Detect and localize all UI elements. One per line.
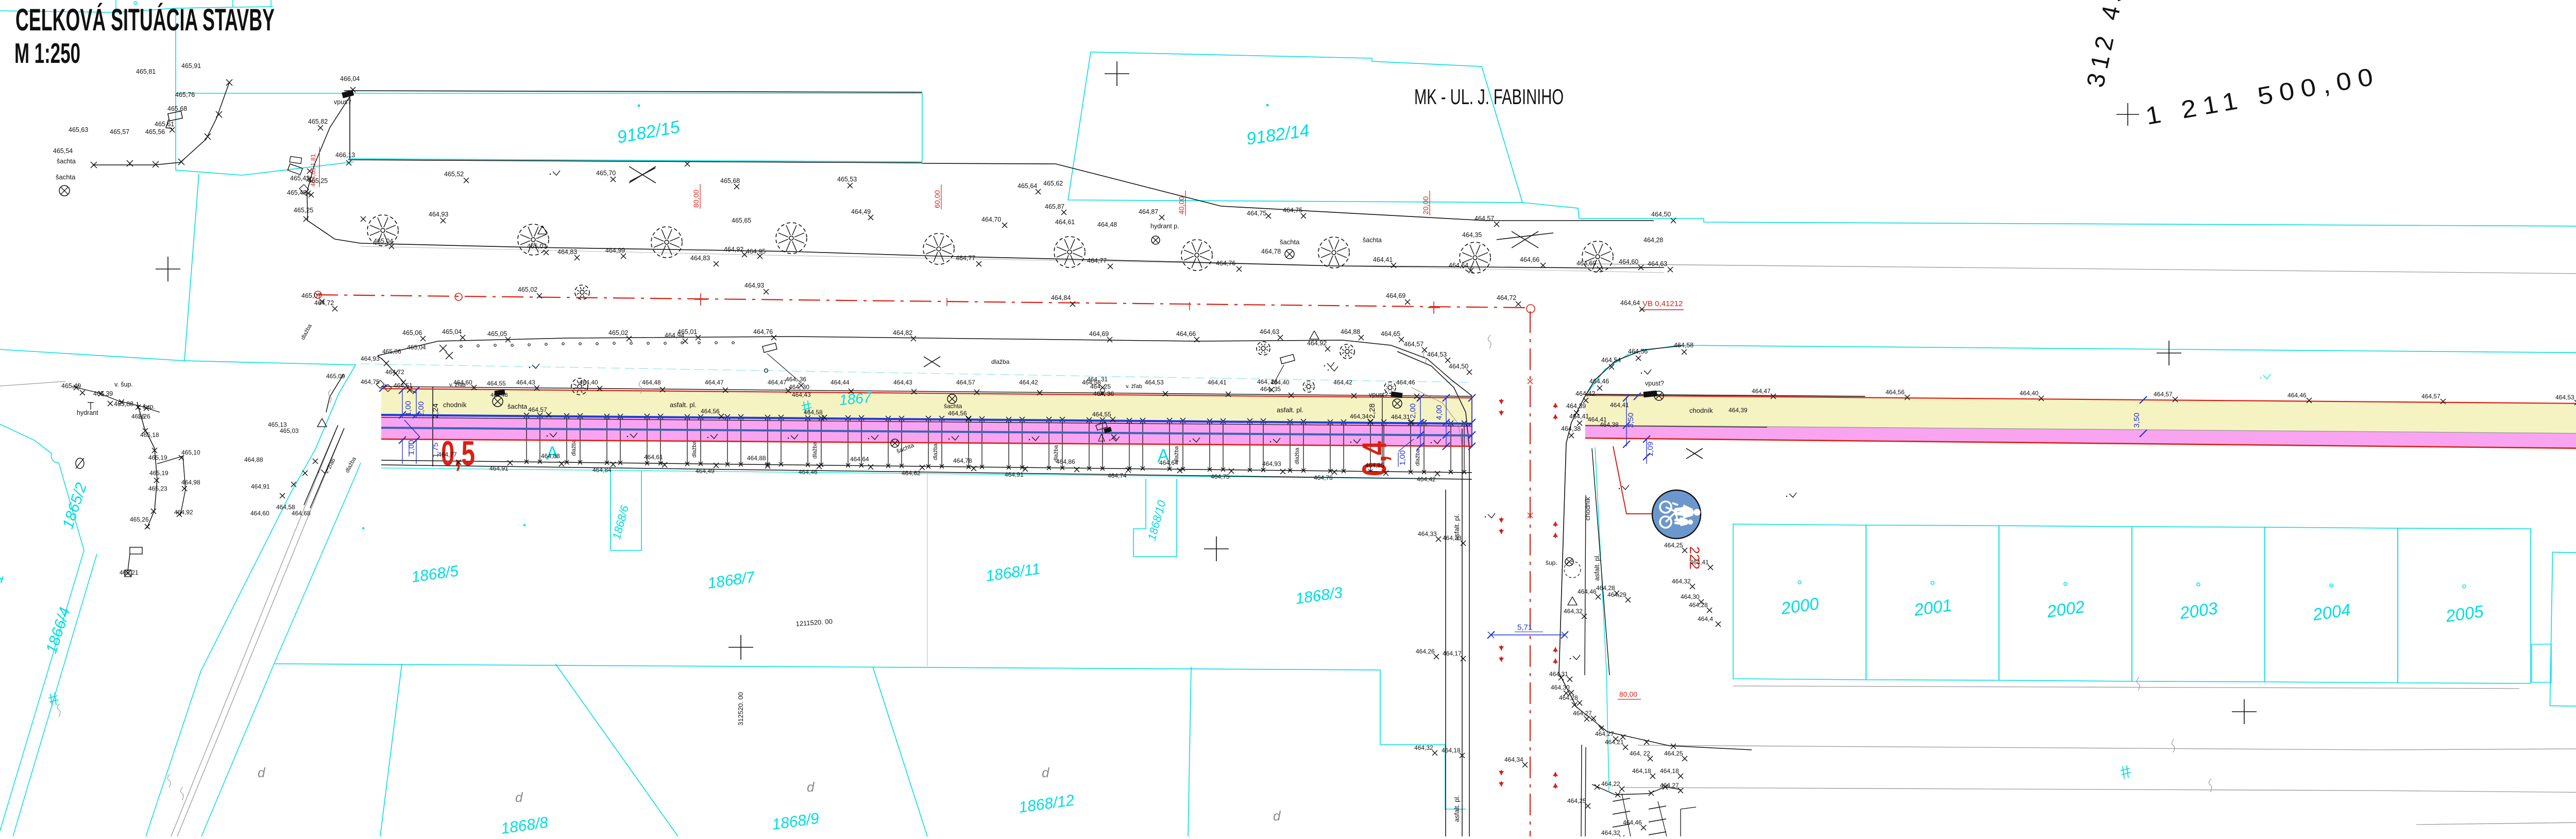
svg-text:464,32: 464,32 xyxy=(1672,578,1691,585)
svg-text:464,58: 464,58 xyxy=(1082,379,1101,386)
svg-text:465,19: 465,19 xyxy=(149,469,168,477)
svg-text:464,64: 464,64 xyxy=(850,456,869,463)
svg-text:dlažba: dlažba xyxy=(691,441,698,458)
svg-text:464,32: 464,32 xyxy=(1414,744,1433,751)
svg-text:465,81: 465,81 xyxy=(136,68,156,75)
svg-text:464,66: 464,66 xyxy=(1176,330,1196,338)
svg-text:464,54: 464,54 xyxy=(1601,357,1621,364)
svg-text:asfalt. pl.: asfalt. pl. xyxy=(1453,795,1461,822)
svg-text:465,06: 465,06 xyxy=(402,329,422,337)
svg-text:464,99: 464,99 xyxy=(605,247,625,254)
svg-text:466,13: 466,13 xyxy=(335,152,355,159)
svg-text:šachta: šachta xyxy=(1280,238,1300,246)
svg-text:465,65: 465,65 xyxy=(732,217,751,224)
svg-text:dlažba: dlažba xyxy=(933,443,939,460)
svg-text:464,69: 464,69 xyxy=(1577,260,1596,267)
svg-text:464,60: 464,60 xyxy=(1619,258,1638,265)
svg-text:464,74: 464,74 xyxy=(1108,472,1127,479)
svg-text:464,93: 464,93 xyxy=(429,211,448,218)
svg-text:464,87: 464,87 xyxy=(1139,208,1158,215)
svg-text:464,27: 464,27 xyxy=(1573,710,1592,717)
svg-text:464,88: 464,88 xyxy=(541,452,560,460)
svg-text:464,27: 464,27 xyxy=(1595,730,1614,737)
svg-text:465,63: 465,63 xyxy=(69,126,88,133)
svg-text:312520. 00: 312520. 00 xyxy=(737,692,744,726)
svg-text:464,55: 464,55 xyxy=(1092,411,1111,418)
svg-text:465,26: 465,26 xyxy=(130,516,149,523)
svg-text:464,57: 464,57 xyxy=(2421,393,2441,400)
svg-text:464,27: 464,27 xyxy=(1660,782,1679,789)
svg-text:464,31: 464,31 xyxy=(1549,670,1568,678)
svg-text:464,62: 464,62 xyxy=(902,469,921,477)
svg-text:dlažba: dlažba xyxy=(812,442,818,459)
svg-text:d: d xyxy=(807,779,815,795)
svg-text:464,46: 464,46 xyxy=(1396,379,1415,386)
svg-text:464,42: 464,42 xyxy=(1019,379,1038,386)
svg-text:464,66: 464,66 xyxy=(1520,256,1539,263)
svg-text:20,00: 20,00 xyxy=(1421,196,1430,214)
svg-text:1,00: 1,00 xyxy=(404,401,413,416)
svg-text:464,53: 464,53 xyxy=(1427,351,1447,358)
svg-text:464,42: 464,42 xyxy=(1417,476,1436,483)
svg-text:464,76: 464,76 xyxy=(753,328,773,335)
svg-text:464,18: 464,18 xyxy=(1632,767,1651,775)
svg-text:464,46: 464,46 xyxy=(2287,392,2307,399)
svg-text:464,49: 464,49 xyxy=(696,467,715,475)
svg-text:465,68: 465,68 xyxy=(720,177,740,184)
svg-text:šachta: šachta xyxy=(56,173,76,181)
svg-text:465,61: 465,61 xyxy=(155,121,174,128)
svg-text:2,00: 2,00 xyxy=(417,401,426,416)
svg-text:464,48: 464,48 xyxy=(1097,221,1117,228)
svg-text:464,35: 464,35 xyxy=(1462,231,1482,239)
svg-text:464,18: 464,18 xyxy=(1442,747,1461,754)
svg-text:464,53: 464,53 xyxy=(2555,394,2574,401)
svg-text:464,92: 464,92 xyxy=(1307,340,1327,347)
svg-text:0,4: 0,4 xyxy=(1355,441,1393,476)
svg-text:465,10: 465,10 xyxy=(181,449,200,456)
svg-text:464,28: 464,28 xyxy=(1689,601,1708,609)
svg-text:465,91: 465,91 xyxy=(181,62,201,70)
svg-text:465,39: 465,39 xyxy=(93,390,113,397)
svg-text:465,05: 465,05 xyxy=(487,330,507,338)
svg-text:465,70: 465,70 xyxy=(596,170,616,177)
svg-text:464,88: 464,88 xyxy=(244,456,263,463)
svg-text:vpust?: vpust? xyxy=(1369,391,1388,398)
svg-text:464,77: 464,77 xyxy=(1087,257,1107,264)
svg-text:464,25: 464,25 xyxy=(1567,797,1586,804)
svg-text:464,85: 464,85 xyxy=(1365,462,1384,469)
svg-text:464,64: 464,64 xyxy=(1159,459,1178,466)
svg-text:v. žľab: v. žľab xyxy=(1126,383,1142,390)
svg-text:chodník: chodník xyxy=(443,401,467,409)
svg-text:465,25: 465,25 xyxy=(294,207,313,214)
svg-text:2,24: 2,24 xyxy=(431,404,440,418)
svg-text:464,47: 464,47 xyxy=(705,379,724,386)
svg-text:VB 0,41212: VB 0,41212 xyxy=(1642,299,1683,308)
svg-text:465,76: 465,76 xyxy=(175,91,195,98)
svg-text:dlažba: dlažba xyxy=(991,358,1010,365)
svg-text:šachta: šachta xyxy=(1363,237,1382,244)
svg-text:chodník: chodník xyxy=(1689,407,1713,414)
svg-text:464,41: 464,41 xyxy=(1690,559,1709,566)
svg-text:5,71: 5,71 xyxy=(1517,623,1532,632)
svg-text:465,49: 465,49 xyxy=(61,382,81,390)
svg-text:464,56: 464,56 xyxy=(948,410,967,417)
svg-text:d: d xyxy=(515,790,523,805)
svg-text:464,56: 464,56 xyxy=(701,408,720,415)
svg-text:464,49: 464,49 xyxy=(851,208,871,215)
svg-text:464,53: 464,53 xyxy=(1145,379,1164,386)
svg-text:464,93: 464,93 xyxy=(744,282,764,289)
svg-text:hydrant p.: hydrant p. xyxy=(1150,223,1179,230)
svg-text:464,57: 464,57 xyxy=(1404,341,1423,348)
svg-text:asfalt. pl.: asfalt. pl. xyxy=(670,401,697,409)
svg-text:464,76: 464,76 xyxy=(1314,474,1333,481)
svg-text:464,41: 464,41 xyxy=(1373,256,1393,263)
svg-text:464,72: 464,72 xyxy=(1497,294,1516,301)
svg-text:464,98: 464,98 xyxy=(181,479,200,486)
svg-text:d: d xyxy=(258,765,266,780)
svg-text:464,61: 464,61 xyxy=(644,454,663,461)
svg-text:464,93: 464,93 xyxy=(361,355,380,362)
svg-text:464,88: 464,88 xyxy=(1341,328,1360,335)
svg-text:464,29: 464,29 xyxy=(1607,591,1626,598)
svg-text:464,46: 464,46 xyxy=(1623,819,1642,826)
svg-text:465,26: 465,26 xyxy=(131,413,150,420)
svg-text:v. šup.: v. šup. xyxy=(114,381,133,388)
svg-text:464,44: 464,44 xyxy=(831,379,850,386)
svg-text:1,09: 1,09 xyxy=(1646,442,1655,457)
svg-text:464,65: 464,65 xyxy=(1381,330,1400,338)
svg-text:464,75: 464,75 xyxy=(1247,210,1266,217)
svg-text:465,06: 465,06 xyxy=(382,348,401,355)
svg-text:464,41: 464,41 xyxy=(1588,416,1607,423)
svg-text:466,04: 466,04 xyxy=(340,75,360,82)
svg-text:464,22: 464,22 xyxy=(1601,780,1620,787)
svg-text:šachta: šachta xyxy=(57,158,76,165)
svg-text:465,02: 465,02 xyxy=(518,286,537,293)
svg-text:dlažba: dlažba xyxy=(1294,447,1300,464)
svg-text:464,60: 464,60 xyxy=(453,379,472,386)
svg-text:464,33: 464,33 xyxy=(1443,534,1462,542)
svg-text:MK - UL. J. FABINIHO: MK - UL. J. FABINIHO xyxy=(1414,85,1564,109)
svg-text:465,53: 465,53 xyxy=(837,176,857,183)
svg-text:465,62: 465,62 xyxy=(1043,180,1063,187)
svg-text:464,58: 464,58 xyxy=(804,409,823,416)
svg-text:464,92: 464,92 xyxy=(724,246,743,253)
svg-text:464,95: 464,95 xyxy=(746,248,766,255)
svg-text:464,42: 464,42 xyxy=(1333,379,1352,386)
svg-text:464,75: 464,75 xyxy=(1211,473,1230,480)
svg-text:464,47: 464,47 xyxy=(768,379,787,386)
svg-text:465,09: 465,09 xyxy=(326,373,345,380)
svg-text:chodník: chodník xyxy=(1584,497,1591,521)
svg-text:465,57: 465,57 xyxy=(110,128,129,136)
svg-text:464,39: 464,39 xyxy=(1728,407,1748,414)
svg-text:464,48: 464,48 xyxy=(490,392,508,398)
svg-text:464,41: 464,41 xyxy=(1208,379,1227,386)
svg-text:464,60: 464,60 xyxy=(250,510,269,517)
svg-text:464,48: 464,48 xyxy=(642,379,661,386)
svg-text:464,40: 464,40 xyxy=(1270,379,1290,386)
svg-text:M 1:250: M 1:250 xyxy=(14,37,80,69)
svg-text:hydrant: hydrant xyxy=(77,409,98,416)
svg-text:464, 22: 464, 22 xyxy=(1630,750,1650,757)
svg-text:464,68: 464,68 xyxy=(292,510,311,517)
svg-text:465,04: 465,04 xyxy=(374,238,393,245)
svg-text:465,21: 465,21 xyxy=(120,569,139,576)
svg-text:464,32: 464,32 xyxy=(1601,829,1620,836)
svg-text:464,25: 464,25 xyxy=(1664,750,1683,757)
svg-text:464,25: 464,25 xyxy=(1664,542,1683,549)
svg-text:464,78: 464,78 xyxy=(953,457,972,464)
svg-text:464,41: 464,41 xyxy=(1569,413,1589,420)
svg-text:464,92: 464,92 xyxy=(174,509,193,516)
svg-text:464,69: 464,69 xyxy=(1089,330,1109,338)
svg-text:465,19: 465,19 xyxy=(148,454,167,461)
svg-text:464,75: 464,75 xyxy=(1283,207,1302,214)
svg-text:464,70: 464,70 xyxy=(981,216,1001,223)
svg-text:464,82: 464,82 xyxy=(893,329,912,337)
svg-text:464,94: 464,94 xyxy=(665,332,684,339)
svg-text:465,88: 465,88 xyxy=(114,400,133,408)
svg-text:1867: 1867 xyxy=(839,390,873,408)
svg-text:464, 36: 464, 36 xyxy=(1093,390,1114,397)
svg-text:465,56: 465,56 xyxy=(145,128,165,136)
svg-text:464,57: 464,57 xyxy=(528,406,547,413)
svg-text:464,76: 464,76 xyxy=(1216,260,1235,267)
svg-text:464,43: 464,43 xyxy=(792,391,811,398)
svg-text:465,18: 465,18 xyxy=(140,431,159,439)
svg-text:464,51: 464,51 xyxy=(394,382,413,389)
svg-text:CELKOVÁ SITUÁCIA STAVBY: CELKOVÁ SITUÁCIA STAVBY xyxy=(15,3,275,37)
svg-text:222: 222 xyxy=(1687,546,1702,569)
svg-text:465,07: 465,07 xyxy=(301,292,321,299)
svg-text:464,32: 464,32 xyxy=(1564,608,1583,615)
svg-text:465,52: 465,52 xyxy=(444,171,464,178)
svg-text:464,31: 464,31 xyxy=(1391,413,1410,421)
svg-text:464,86: 464,86 xyxy=(1056,458,1075,465)
svg-text:3,50: 3,50 xyxy=(1626,413,1635,428)
svg-text:465,25: 465,25 xyxy=(308,177,328,184)
svg-text:464,21: 464,21 xyxy=(1605,739,1624,746)
svg-text:464,58: 464,58 xyxy=(1674,342,1693,349)
svg-text:v. šup.: v. šup. xyxy=(137,403,155,410)
svg-text:464,75: 464,75 xyxy=(361,378,380,385)
svg-text:464,34: 464,34 xyxy=(1350,413,1369,420)
svg-text:464, 36: 464, 36 xyxy=(786,376,806,383)
svg-text:465,02: 465,02 xyxy=(608,329,628,337)
svg-text:464,30: 464,30 xyxy=(1551,684,1570,691)
svg-text:465,23: 465,23 xyxy=(148,485,167,492)
svg-text:464,17: 464,17 xyxy=(1443,650,1462,657)
svg-text:2,28: 2,28 xyxy=(1368,404,1377,418)
svg-text:464,46: 464,46 xyxy=(1589,378,1609,385)
svg-text:464,56: 464,56 xyxy=(1628,348,1648,355)
svg-text:464,47: 464,47 xyxy=(1752,388,1771,395)
svg-text:464,28: 464,28 xyxy=(1643,237,1663,244)
svg-text:464,56: 464,56 xyxy=(1886,389,1905,396)
svg-text:464,43: 464,43 xyxy=(516,379,535,386)
svg-text:464,39: 464,39 xyxy=(1566,402,1586,410)
svg-text:465,68: 465,68 xyxy=(167,105,187,112)
svg-text:464,42: 464,42 xyxy=(1575,390,1595,397)
svg-text:465,03: 465,03 xyxy=(280,427,299,434)
svg-text:asfalt. pl.: asfalt. pl. xyxy=(1593,554,1601,581)
svg-text:465,64: 465,64 xyxy=(1018,182,1037,190)
svg-text:464,78: 464,78 xyxy=(1261,248,1281,255)
svg-text:464,84: 464,84 xyxy=(1051,294,1071,301)
svg-text:465,04: 465,04 xyxy=(407,344,426,351)
svg-text:464,69: 464,69 xyxy=(1386,292,1405,299)
svg-text:464,46: 464,46 xyxy=(799,468,818,476)
svg-text:464,50: 464,50 xyxy=(1449,363,1468,370)
svg-text:464,57: 464,57 xyxy=(956,379,975,386)
svg-text:464,33: 464,33 xyxy=(1418,530,1437,538)
svg-text:464,77: 464,77 xyxy=(956,255,975,262)
svg-text:465,48: 465,48 xyxy=(287,189,307,196)
svg-text:464,26: 464,26 xyxy=(1416,648,1435,655)
svg-text:464,43: 464,43 xyxy=(893,379,912,386)
svg-text:asfalt. pl.: asfalt. pl. xyxy=(1277,406,1303,414)
svg-text:464,91: 464,91 xyxy=(251,483,270,490)
svg-text:vpust?: vpust? xyxy=(1645,380,1664,387)
svg-text:465,03: 465,03 xyxy=(527,243,547,250)
svg-text:465,54: 465,54 xyxy=(53,147,73,155)
svg-text:3,50: 3,50 xyxy=(2132,413,2141,428)
svg-text:464,50: 464,50 xyxy=(1651,211,1671,218)
svg-text:464,57: 464,57 xyxy=(1475,215,1494,222)
svg-text:464,91: 464,91 xyxy=(489,465,509,472)
svg-text:60,00: 60,00 xyxy=(933,190,941,208)
svg-text:464,63: 464,63 xyxy=(1648,260,1667,267)
svg-text:464,18: 464,18 xyxy=(1660,767,1679,775)
svg-text:464,40: 464,40 xyxy=(579,379,598,386)
svg-text:464,30: 464,30 xyxy=(1681,593,1700,600)
svg-text:d: d xyxy=(1273,808,1281,824)
svg-text:4,00: 4,00 xyxy=(1435,405,1444,420)
svg-text:465,82: 465,82 xyxy=(308,118,328,125)
svg-text:464,41: 464,41 xyxy=(1610,401,1629,409)
svg-text:vpus?: vpus? xyxy=(334,98,351,106)
svg-text:464,61: 464,61 xyxy=(1055,219,1075,226)
svg-text:1,00: 1,00 xyxy=(407,440,416,455)
svg-text:464,38: 464,38 xyxy=(1561,425,1581,432)
svg-text:464,46: 464,46 xyxy=(1578,588,1597,595)
svg-text:464,93: 464,93 xyxy=(1262,460,1281,467)
svg-text:464,84: 464,84 xyxy=(592,466,612,474)
svg-text:465,04: 465,04 xyxy=(442,328,462,335)
svg-text:464,91: 464,91 xyxy=(1005,471,1024,478)
svg-text:dlažba: dlažba xyxy=(1415,449,1421,466)
svg-text:464,34: 464,34 xyxy=(1504,756,1523,763)
svg-text:šup.: šup. xyxy=(1546,559,1557,566)
svg-text:464,83: 464,83 xyxy=(690,255,710,262)
svg-text:464,72: 464,72 xyxy=(385,368,404,376)
svg-text:464,40: 464,40 xyxy=(2020,390,2039,397)
svg-text:1,00: 1,00 xyxy=(1398,450,1407,465)
svg-text:80,00: 80,00 xyxy=(692,190,700,208)
svg-text:464,83: 464,83 xyxy=(557,248,577,256)
svg-text:464,64: 464,64 xyxy=(1620,299,1640,307)
svg-text:464,77: 464,77 xyxy=(438,451,457,458)
svg-text:464,28: 464,28 xyxy=(1559,694,1578,701)
svg-text:464,88: 464,88 xyxy=(747,455,766,462)
svg-text:80,00: 80,00 xyxy=(1619,690,1637,698)
svg-text:464,4: 464,4 xyxy=(1698,615,1713,623)
svg-text:465,87: 465,87 xyxy=(1045,203,1064,210)
svg-text:dlažba: dlažba xyxy=(571,439,577,456)
svg-text:464,28: 464,28 xyxy=(1596,584,1615,592)
svg-text:464,55: 464,55 xyxy=(487,380,506,387)
svg-text:40,00: 40,00 xyxy=(1177,196,1185,214)
svg-text:464,72: 464,72 xyxy=(314,299,334,307)
svg-text:464,63: 464,63 xyxy=(1260,328,1279,335)
svg-text:šachta: šachta xyxy=(507,402,528,410)
svg-text:464,57: 464,57 xyxy=(2154,391,2173,398)
svg-text:465,13: 465,13 xyxy=(268,421,287,428)
svg-text:šachta: šachta xyxy=(944,402,962,410)
svg-text:464,64: 464,64 xyxy=(1449,262,1468,269)
svg-text:d: d xyxy=(1042,765,1050,780)
